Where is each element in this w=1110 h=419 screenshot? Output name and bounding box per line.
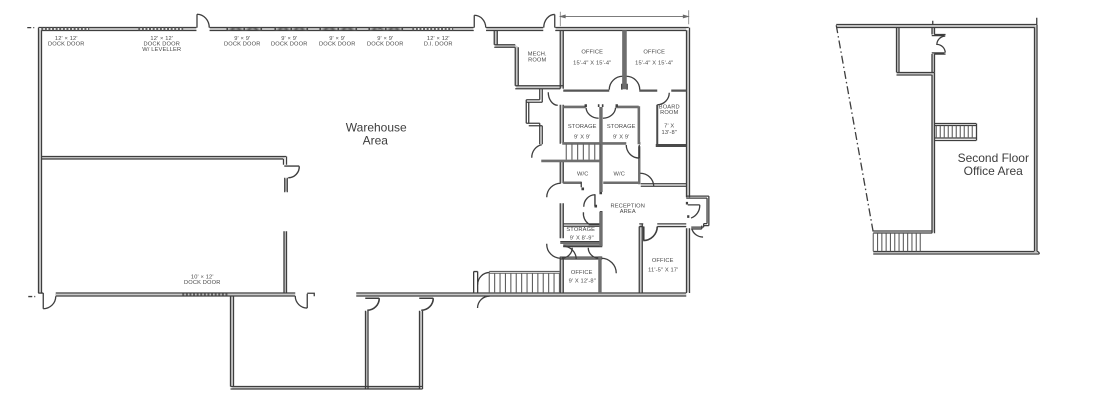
svg-text:OFFICE: OFFICE	[571, 270, 593, 276]
svg-text:9' X 8'-9": 9' X 8'-9"	[570, 235, 594, 241]
svg-text:15'-4" X 15'-4": 15'-4" X 15'-4"	[573, 60, 611, 66]
svg-text:W/ LEVELLER: W/ LEVELLER	[142, 47, 181, 53]
svg-text:ROOM: ROOM	[660, 110, 678, 116]
svg-text:Area: Area	[363, 133, 389, 147]
svg-text:STORAGE: STORAGE	[568, 124, 597, 130]
svg-text:15'-4" X 15'-4": 15'-4" X 15'-4"	[635, 60, 673, 66]
svg-text:OFFICE: OFFICE	[581, 49, 603, 55]
svg-text:Office Area: Office Area	[964, 164, 1023, 178]
svg-text:DOCK DOOR: DOCK DOOR	[271, 41, 307, 47]
svg-text:7' X: 7' X	[664, 123, 674, 129]
svg-text:STORAGE: STORAGE	[566, 227, 595, 233]
svg-text:OFFICE: OFFICE	[643, 49, 665, 55]
svg-text:D.I. DOOR: D.I. DOOR	[424, 41, 453, 47]
svg-text:9' X 12'-8": 9' X 12'-8"	[569, 278, 596, 284]
svg-text:DOCK DOOR: DOCK DOOR	[184, 280, 220, 286]
svg-text:STORAGE: STORAGE	[607, 124, 636, 130]
svg-text:11'-5" X 17': 11'-5" X 17'	[648, 267, 678, 273]
svg-text:DOCK DOOR: DOCK DOOR	[48, 41, 84, 47]
svg-text:DOCK DOOR: DOCK DOOR	[367, 41, 403, 47]
svg-text:Second Floor: Second Floor	[958, 151, 1029, 165]
svg-text:DOCK DOOR: DOCK DOOR	[224, 41, 260, 47]
svg-text:9' X 9': 9' X 9'	[613, 134, 630, 140]
svg-text:ROOM: ROOM	[528, 57, 546, 63]
svg-text:AREA: AREA	[620, 209, 636, 215]
svg-text:OFFICE: OFFICE	[652, 258, 674, 264]
svg-text:9' X 9': 9' X 9'	[574, 134, 591, 140]
svg-text:13'-8": 13'-8"	[662, 130, 677, 136]
svg-text:DOCK DOOR: DOCK DOOR	[319, 41, 355, 47]
svg-text:W/C: W/C	[613, 171, 625, 177]
svg-text:Warehouse: Warehouse	[346, 120, 407, 134]
svg-text:W/C: W/C	[577, 171, 589, 177]
